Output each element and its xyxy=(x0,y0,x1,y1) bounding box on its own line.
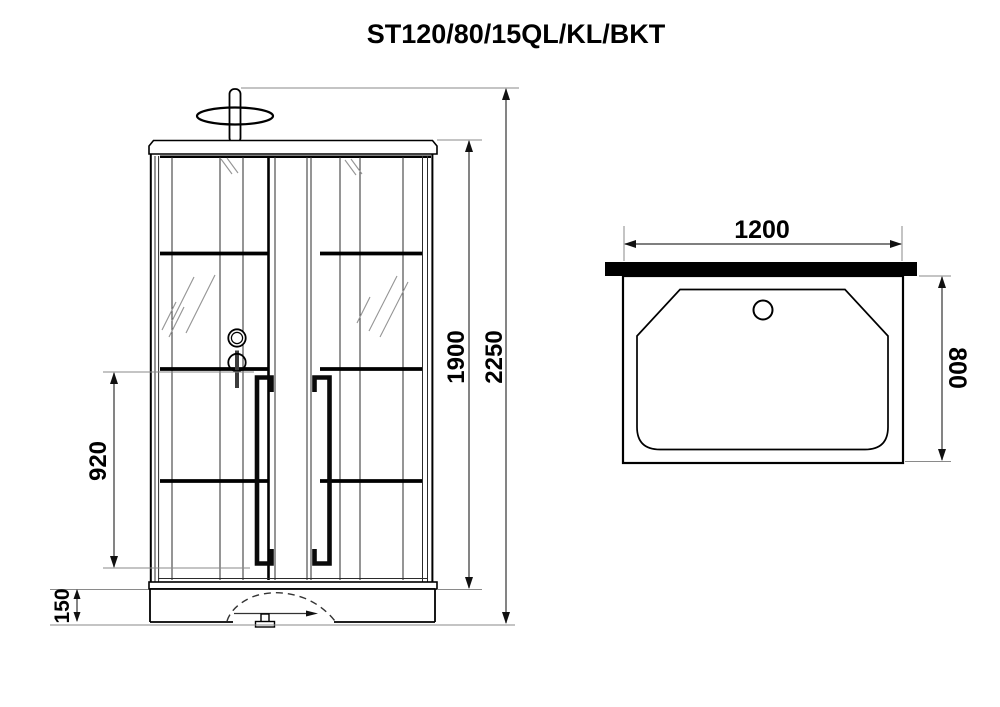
glass-mark xyxy=(357,297,370,323)
drawing-title: ST120/80/15QL/KL/BKT xyxy=(367,19,666,49)
arrowhead xyxy=(502,612,510,624)
arrowhead xyxy=(465,577,473,589)
dim-label-overall-height: 2250 xyxy=(481,330,508,383)
arrowhead xyxy=(624,240,636,248)
arrowhead xyxy=(74,612,81,622)
technical-drawing-page: ST120/80/15QL/KL/BKT xyxy=(0,0,1000,707)
right-door-handle xyxy=(315,378,330,564)
drain-trap-neck xyxy=(261,614,269,622)
glass-hatch-marks xyxy=(162,158,408,337)
cabin-roof xyxy=(149,141,437,155)
arrowhead xyxy=(110,372,118,384)
technical-drawing-canvas: ST120/80/15QL/KL/BKT xyxy=(0,0,1000,707)
base-tray xyxy=(149,579,437,628)
dim-cabin-height: 1900 xyxy=(437,140,482,590)
glass-mark xyxy=(172,277,194,321)
dim-tray-height: 150 xyxy=(50,588,148,623)
glass-mark xyxy=(227,158,238,173)
glass-mark xyxy=(380,282,408,337)
drain-trap-foot xyxy=(256,622,275,628)
arrowhead xyxy=(74,589,81,599)
glass-mark xyxy=(345,160,356,175)
dim-opening-height: 920 xyxy=(85,372,254,568)
sill xyxy=(149,582,437,589)
arrowhead xyxy=(938,449,946,461)
glass-mark xyxy=(221,159,232,174)
arrowhead xyxy=(890,240,902,248)
drain-hole xyxy=(754,301,773,320)
glass-mark xyxy=(369,276,397,331)
arrowhead xyxy=(465,140,473,152)
dim-tray-width: 1200 xyxy=(624,216,902,261)
dim-label-opening-height: 920 xyxy=(85,441,112,481)
top-view xyxy=(605,262,917,463)
horizontal-rails xyxy=(160,254,422,482)
dim-label-tray-width: 1200 xyxy=(734,216,790,244)
dim-label-tray-height: 150 xyxy=(51,588,74,623)
back-wall-bar xyxy=(605,262,917,276)
shower-head xyxy=(197,89,273,143)
arrowhead xyxy=(938,276,946,288)
front-view xyxy=(149,89,437,627)
dim-label-tray-depth: 800 xyxy=(943,347,971,389)
shower-head-stem xyxy=(230,89,241,143)
arrowhead xyxy=(502,88,510,100)
arrowhead xyxy=(110,556,118,568)
dim-label-cabin-height: 1900 xyxy=(443,330,470,383)
dim-tray-depth: 800 xyxy=(905,276,971,462)
